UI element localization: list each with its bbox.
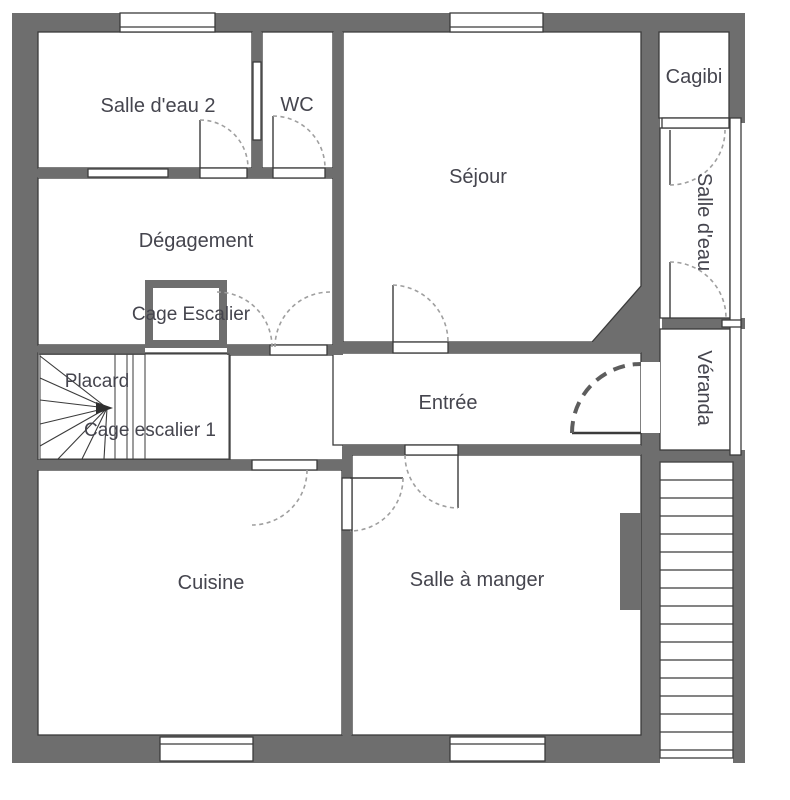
room-areas: [38, 32, 733, 758]
room-area-entree: [333, 353, 641, 445]
room-area-stairwell-1: [38, 353, 230, 460]
opening-entree-sam: [405, 445, 458, 455]
room-label-veranda: Véranda: [693, 350, 715, 426]
opening-sejour: [393, 342, 448, 353]
room-label-cage-escalier: Cage Escalier: [132, 304, 251, 325]
wall-cagibi-right: [729, 13, 745, 123]
floor-plan-drawing: Salle d'eau 2 WC Séjour Cagibi Salle d'e…: [0, 0, 790, 800]
wall-cuisine-top-left: [12, 460, 252, 470]
room-label-cuisine: Cuisine: [178, 572, 245, 594]
wall-wc-bottom-left: [262, 168, 273, 178]
wall-sejour-bottom-left: [343, 342, 393, 353]
floor-plan-page: Salle d'eau 2 WC Séjour Cagibi Salle d'e…: [0, 0, 790, 800]
room-label-cagibi: Cagibi: [666, 66, 723, 88]
opening-cuisine: [252, 460, 317, 470]
room-label-cage-escalier-1: Cage escalier 1: [84, 420, 216, 441]
opening-cuisine-vestibule: [342, 478, 352, 530]
glazing-wc-wall: [253, 62, 261, 140]
opening-sde2: [200, 168, 247, 178]
glazing-sde2-wall: [88, 169, 168, 177]
glazing-annex-right: [730, 118, 741, 455]
window-cagibi-bottom: [662, 118, 729, 128]
room-label-salle-deau: Salle d'eau: [693, 173, 715, 271]
opening-degagement: [270, 345, 327, 355]
wall-sejour-left: [333, 32, 343, 353]
room-label-salle-deau-2: Salle d'eau 2: [100, 95, 215, 117]
window-annex-separator: [722, 320, 741, 327]
wall-sejour-bottom-right: [448, 342, 641, 353]
window-top-right: [450, 13, 543, 32]
room-area-cuisine: [38, 470, 342, 735]
wall-sam-pilaster: [620, 513, 641, 610]
window-bottom-cuisine: [160, 737, 253, 761]
room-area-salle-a-manger: [352, 455, 641, 735]
window-bottom-sam: [450, 737, 545, 761]
wall-entree-bottom-left: [343, 445, 405, 455]
opening-entrance-door: [641, 362, 660, 433]
room-label-degagement: Dégagement: [139, 230, 254, 252]
room-label-salle-a-manger: Salle à manger: [410, 569, 545, 591]
room-label-sejour: Séjour: [449, 166, 507, 188]
wall-degagement-bottom-mid: [227, 345, 270, 355]
wall-stair-right: [733, 455, 745, 763]
room-label-placard: Placard: [65, 371, 129, 392]
opening-wc: [273, 168, 325, 178]
wall-left: [12, 13, 38, 763]
wall-bottom: [12, 735, 660, 763]
room-area-corridor: [230, 355, 343, 460]
wall-divider-lower: [342, 530, 352, 735]
wall-degagement-bottom-right: [327, 345, 343, 355]
window-top-left: [120, 13, 215, 32]
room-label-wc: WC: [280, 94, 313, 116]
wall-entree-bottom-right: [458, 445, 641, 455]
wall-stair-left: [641, 462, 660, 735]
room-label-entree: Entrée: [419, 392, 478, 414]
